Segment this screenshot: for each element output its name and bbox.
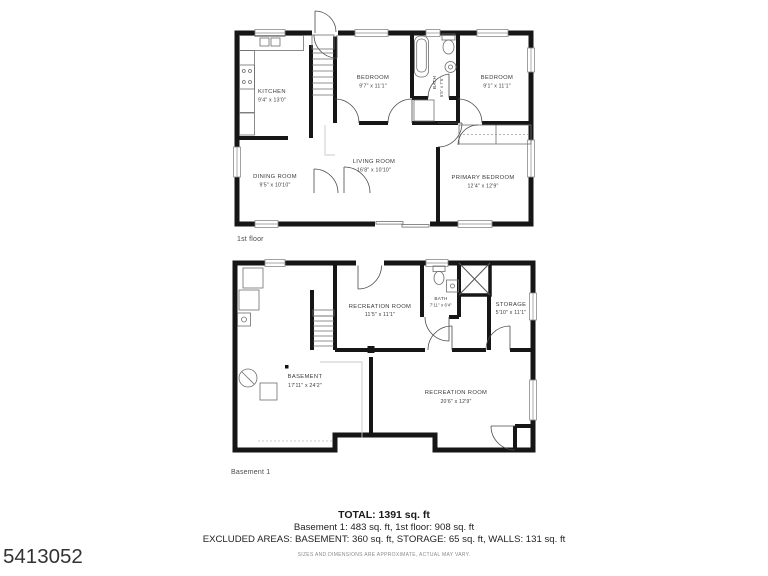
room-dims-kitchen: 9'4" x 13'0" [258,98,286,104]
furnace-icon [260,383,277,400]
excluded-areas-text: EXCLUDED AREAS: BASEMENT: 360 sq. ft, ST… [0,534,768,545]
room-label-bedroom2: BEDROOM [481,75,513,81]
basement-plan: RECREATION ROOM 11'5" x 11'1" BATH 7'11"… [230,258,540,468]
first-floor-interior-walls [237,33,531,224]
refrigerator-icon [240,113,255,135]
room-dims-dining: 9'5" x 10'10" [259,183,290,189]
room-dims-basement: 17'11" x 24'2" [288,383,322,389]
first-floor-exterior-walls [237,33,531,224]
basement-sink-icon [447,280,459,292]
room-dims-rec2: 20'6" x 12'9" [440,399,471,405]
kitchen-fixtures [240,36,304,136]
room-dims-bath-b: 7'11" x 6'4" [430,303,452,308]
room-label-bath-b: BATH [434,296,447,301]
washer-icon [243,268,263,288]
room-label-rec1: RECREATION ROOM [349,304,411,310]
floor-areas-text: Basement 1: 483 sq. ft, 1st floor: 908 s… [0,522,768,533]
room-dims-bedroom2: 9'1" x 11'1" [483,84,511,90]
stove-icon [240,65,255,89]
room-dims-primary: 12'4" x 12'9" [467,184,498,190]
toilet-icon [442,34,455,54]
linen-closet [414,100,434,121]
basement-windows [265,260,537,421]
dryer-icon [239,290,259,310]
post-icon [285,365,289,369]
basement-toilet-icon [433,266,445,285]
first-floor-windows [234,30,535,228]
first-floor-caption: 1st floor [237,236,264,243]
basement-stairs-icon [313,310,334,346]
basement-caption: Basement 1 [231,469,270,476]
total-area-text: TOTAL: 1391 sq. ft [0,509,768,521]
floorplan-page: KITCHEN 9'4" x 13'0" BEDROOM 9'7" x 11'1… [0,0,768,576]
room-label-bedroom1: BEDROOM [357,75,389,81]
room-label-bath: BATH [432,76,437,89]
primary-closet [458,125,531,145]
room-label-rec2: RECREATION ROOM [425,390,487,396]
listing-id: 5413052 [3,545,83,569]
room-label-basement: BASEMENT [288,374,323,380]
kitchen-sink-icon [260,38,269,46]
room-label-living: LIVING ROOM [353,159,396,165]
water-heater-icon [239,369,257,387]
laundry-sink-icon [238,313,251,326]
room-label-dining: DINING ROOM [253,174,297,180]
room-dims-bedroom1: 9'7" x 11'1" [359,84,387,90]
room-dims-living: 16'8" x 10'10" [357,168,391,174]
stairs-icon [312,35,334,95]
room-label-primary: PRIMARY BEDROOM [451,175,514,181]
room-dims-rec1: 11'5" x 11'1" [365,312,395,318]
room-label-kitchen: KITCHEN [258,89,286,95]
sink-icon [445,62,456,73]
guide-line [325,125,335,155]
basement-fixtures [238,266,459,400]
sliding-door [375,220,430,229]
room-dims-bath: 6'5" x 7'6" [439,77,444,97]
first-floor-room-labels: KITCHEN 9'4" x 13'0" BEDROOM 9'7" x 11'1… [253,75,514,190]
room-dims-storage: 5'10" x 11'1" [496,310,527,316]
room-label-storage: STORAGE [496,302,527,308]
disclaimer-text: SIZES AND DIMENSIONS ARE APPROXIMATE, AC… [0,552,768,558]
first-floor-plan: KITCHEN 9'4" x 13'0" BEDROOM 9'7" x 11'1… [230,5,540,240]
basement-interior-walls [312,263,533,450]
